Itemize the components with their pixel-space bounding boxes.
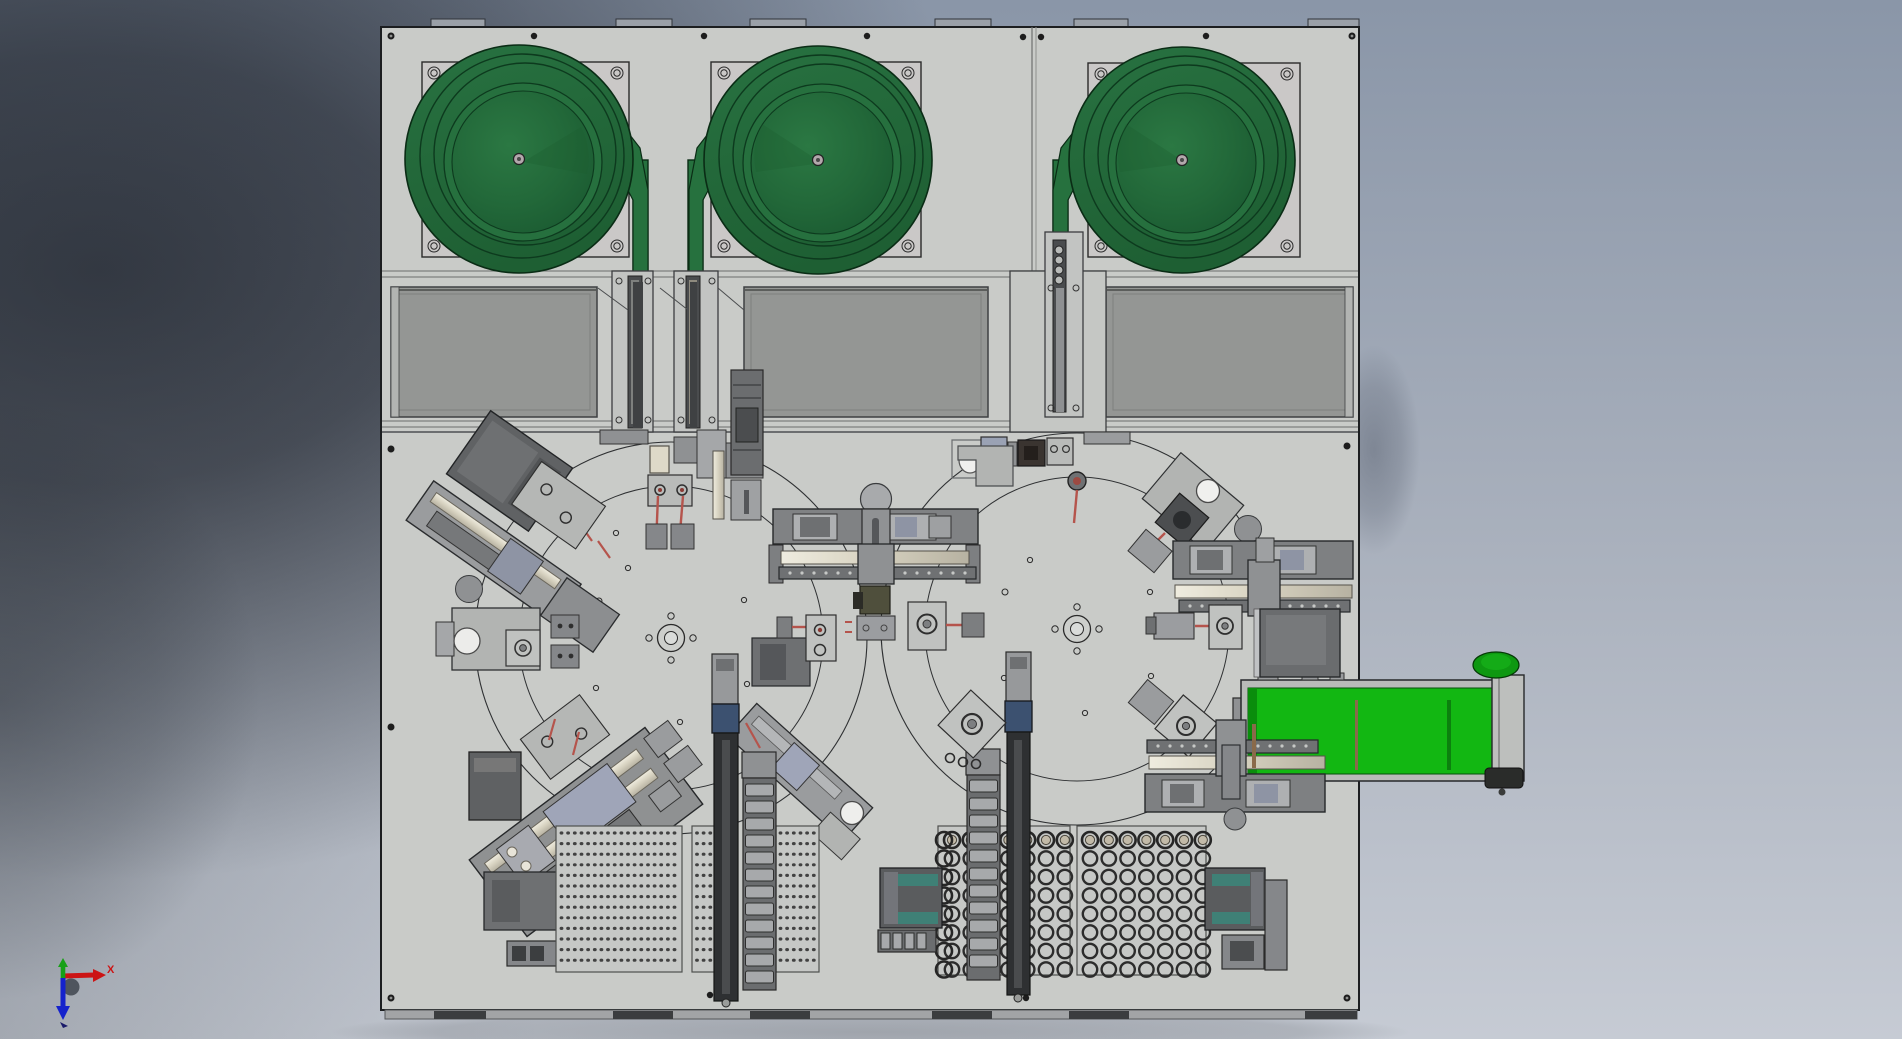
- svg-text:X: X: [107, 964, 115, 976]
